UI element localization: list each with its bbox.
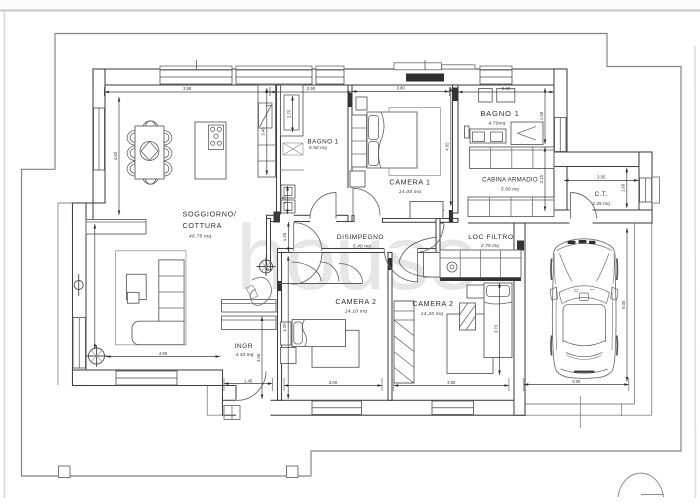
svg-text:BAGNO 1: BAGNO 1 [480, 109, 519, 118]
svg-text:2.15: 2.15 [539, 174, 544, 183]
svg-text:1.26: 1.26 [282, 232, 287, 241]
svg-text:4.60: 4.60 [113, 151, 118, 160]
svg-text:5.40 mq: 5.40 mq [353, 243, 371, 248]
svg-text:3.00: 3.00 [572, 379, 581, 384]
svg-text:3.05: 3.05 [597, 175, 606, 180]
svg-text:4.30 mq: 4.30 mq [236, 352, 254, 357]
svg-text:14.20 mq: 14.20 mq [421, 311, 443, 317]
svg-text:3.55: 3.55 [183, 86, 192, 91]
svg-text:CAMERA 2: CAMERA 2 [335, 297, 376, 306]
svg-text:1.26: 1.26 [281, 195, 286, 204]
svg-text:5.00: 5.00 [621, 300, 626, 309]
svg-text:DISIMPEGNO: DISIMPEGNO [337, 234, 384, 241]
svg-text:1.45: 1.45 [244, 378, 253, 383]
svg-text:3.00: 3.00 [447, 380, 456, 385]
svg-text:CAMERA 1: CAMERA 1 [389, 178, 430, 187]
svg-text:4.05: 4.05 [445, 142, 450, 151]
svg-text:1.60: 1.60 [621, 183, 626, 192]
svg-text:2.90: 2.90 [307, 86, 316, 91]
svg-text:5.50 mq: 5.50 mq [309, 145, 327, 150]
svg-text:46.75 mq: 46.75 mq [189, 234, 211, 240]
svg-text:3.00: 3.00 [329, 380, 338, 385]
svg-text:14.00 mq: 14.00 mq [399, 189, 421, 195]
svg-text:1.48: 1.48 [539, 111, 544, 120]
svg-text:4.70mq: 4.70mq [488, 121, 505, 127]
svg-text:3.70: 3.70 [493, 324, 498, 333]
svg-text:4.90: 4.90 [159, 351, 168, 356]
svg-text:C.T.: C.T. [595, 191, 608, 198]
svg-text:14.10 mq: 14.10 mq [345, 308, 367, 314]
svg-text:2.40: 2.40 [502, 86, 511, 91]
svg-text:SOGGIORNO/: SOGGIORNO/ [183, 210, 237, 219]
svg-text:4.20: 4.20 [282, 323, 287, 332]
svg-text:LOC FILTRO: LOC FILTRO [468, 234, 514, 241]
svg-text:3.90: 3.90 [397, 86, 406, 91]
svg-text:2.70: 2.70 [286, 109, 291, 118]
svg-text:CABINA ARMADIO: CABINA ARMADIO [482, 176, 538, 183]
svg-text:2.75 mq: 2.75 mq [480, 243, 499, 248]
svg-text:CAMERA 2: CAMERA 2 [412, 299, 453, 308]
svg-text:3.45 mq: 3.45 mq [592, 201, 610, 206]
svg-text:5.50 mq: 5.50 mq [501, 187, 519, 192]
svg-text:INGR: INGR [235, 343, 253, 350]
svg-text:3.06: 3.06 [256, 353, 261, 362]
svg-text:COTTURA: COTTURA [183, 221, 223, 230]
svg-text:3.46: 3.46 [261, 127, 266, 136]
